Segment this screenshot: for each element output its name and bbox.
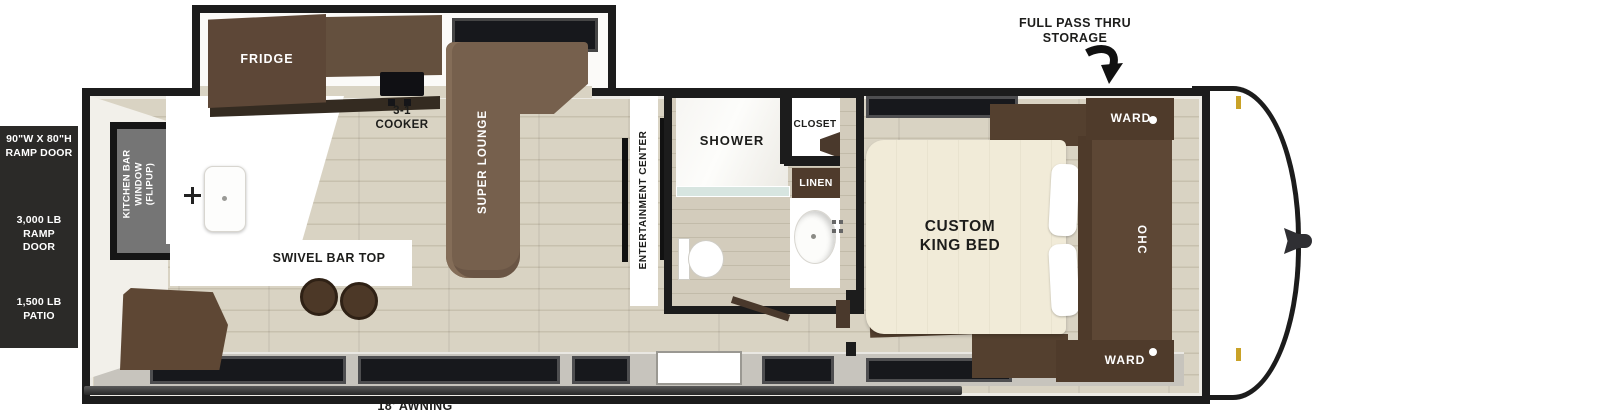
patio-capacity-label: 1,500 LB PATIO xyxy=(0,296,78,323)
bar-stool-2 xyxy=(340,282,378,320)
pillow-1 xyxy=(1048,163,1080,236)
hitch-ball-mount xyxy=(1296,234,1312,248)
storage-arrow-icon xyxy=(1084,44,1126,86)
kitchen-counter-upper xyxy=(326,15,442,77)
speaker-dot-top xyxy=(1149,116,1157,124)
closet-linen-wall xyxy=(784,156,840,166)
pillow-2 xyxy=(1048,243,1080,316)
bedside-cabinet-bottom xyxy=(972,334,1068,378)
ohc-label: OHC xyxy=(1134,225,1148,255)
entertainment-label: ENTERTAINMENT CENTER xyxy=(638,131,650,270)
sink-drain xyxy=(222,196,227,201)
storage-label: FULL PASS THRU STORAGE xyxy=(995,16,1155,47)
bar-stool-1 xyxy=(300,278,338,316)
headboard-ohc-cabinet xyxy=(1078,136,1172,346)
kitchen-bar-window-label: KITCHEN BAR WINDOW (FLIPUP) xyxy=(122,150,157,219)
entry-door xyxy=(656,351,742,385)
bedroom-door-panel xyxy=(836,300,850,328)
front-latch-top xyxy=(1236,96,1241,109)
vanity-faucet-dot-3 xyxy=(832,229,836,233)
shower-label: SHOWER xyxy=(676,133,788,149)
awning-label: 18' AWNING xyxy=(330,399,500,414)
tv-left xyxy=(622,138,628,262)
vanity-faucet-dot-4 xyxy=(839,229,843,233)
floorplan-canvas: 90"W X 80"H RAMP DOOR 3,000 LB RAMP DOOR… xyxy=(0,0,1600,416)
toilet-bowl xyxy=(688,240,724,278)
front-latch-bottom xyxy=(1236,348,1241,361)
faucet-icon-vertical xyxy=(191,187,194,204)
rear-step-platform xyxy=(120,288,228,370)
window-living-2 xyxy=(358,356,560,384)
shower-glass xyxy=(676,186,790,197)
swivel-bar-label: SWIVEL BAR TOP xyxy=(248,251,410,266)
vanity-faucet-dot-1 xyxy=(832,220,836,224)
super-lounge-label: SUPER LOUNGE xyxy=(476,110,490,214)
bedroom-wall-lower-stub xyxy=(846,342,856,356)
linen-label: LINEN xyxy=(792,177,840,190)
cooker-label: 3-1 COOKER xyxy=(350,104,454,132)
ward-top-label: WARD xyxy=(1088,111,1174,126)
speaker-dot-bottom xyxy=(1149,348,1157,356)
linen-cabinet: LINEN xyxy=(792,168,840,198)
ramp-door-size-label: 90"W X 80"H RAMP DOOR xyxy=(0,133,78,160)
window-hall xyxy=(762,356,834,384)
vanity-drain xyxy=(811,234,816,239)
closet-label: CLOSET xyxy=(788,119,842,131)
cooktop xyxy=(380,72,424,96)
window-living-3 xyxy=(572,356,630,384)
ramp-door-capacity-label: 3,000 LB RAMP DOOR xyxy=(0,214,78,255)
ward-bottom-label: WARD xyxy=(1076,353,1174,368)
fridge-label: FRIDGE xyxy=(208,52,326,67)
awning-bar xyxy=(84,386,962,395)
vanity-faucet-dot-2 xyxy=(839,220,843,224)
bed-label: CUSTOM KING BED xyxy=(880,218,1040,256)
specs-panel: 90"W X 80"H RAMP DOOR 3,000 LB RAMP DOOR… xyxy=(0,126,78,348)
